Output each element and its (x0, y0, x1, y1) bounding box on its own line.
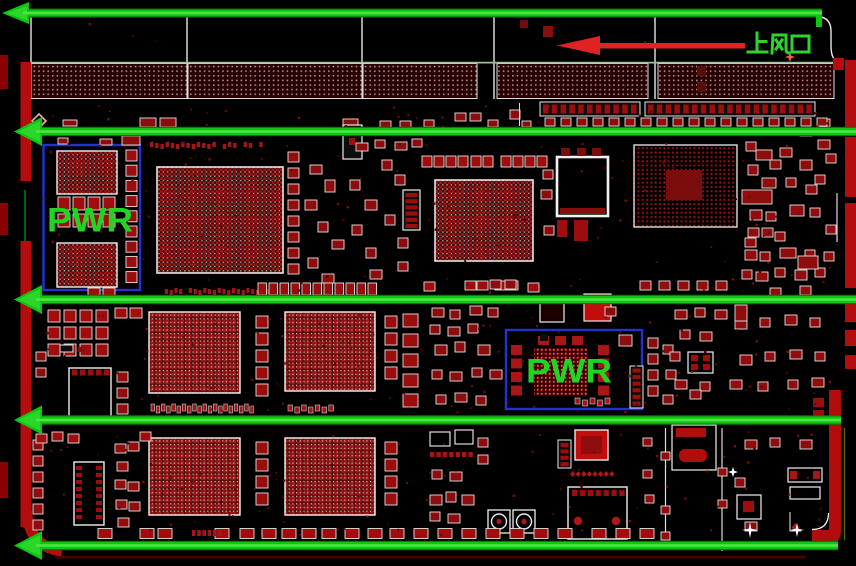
svg-text:PWR: PWR (526, 353, 612, 391)
svg-text:PWR: PWR (47, 202, 133, 240)
